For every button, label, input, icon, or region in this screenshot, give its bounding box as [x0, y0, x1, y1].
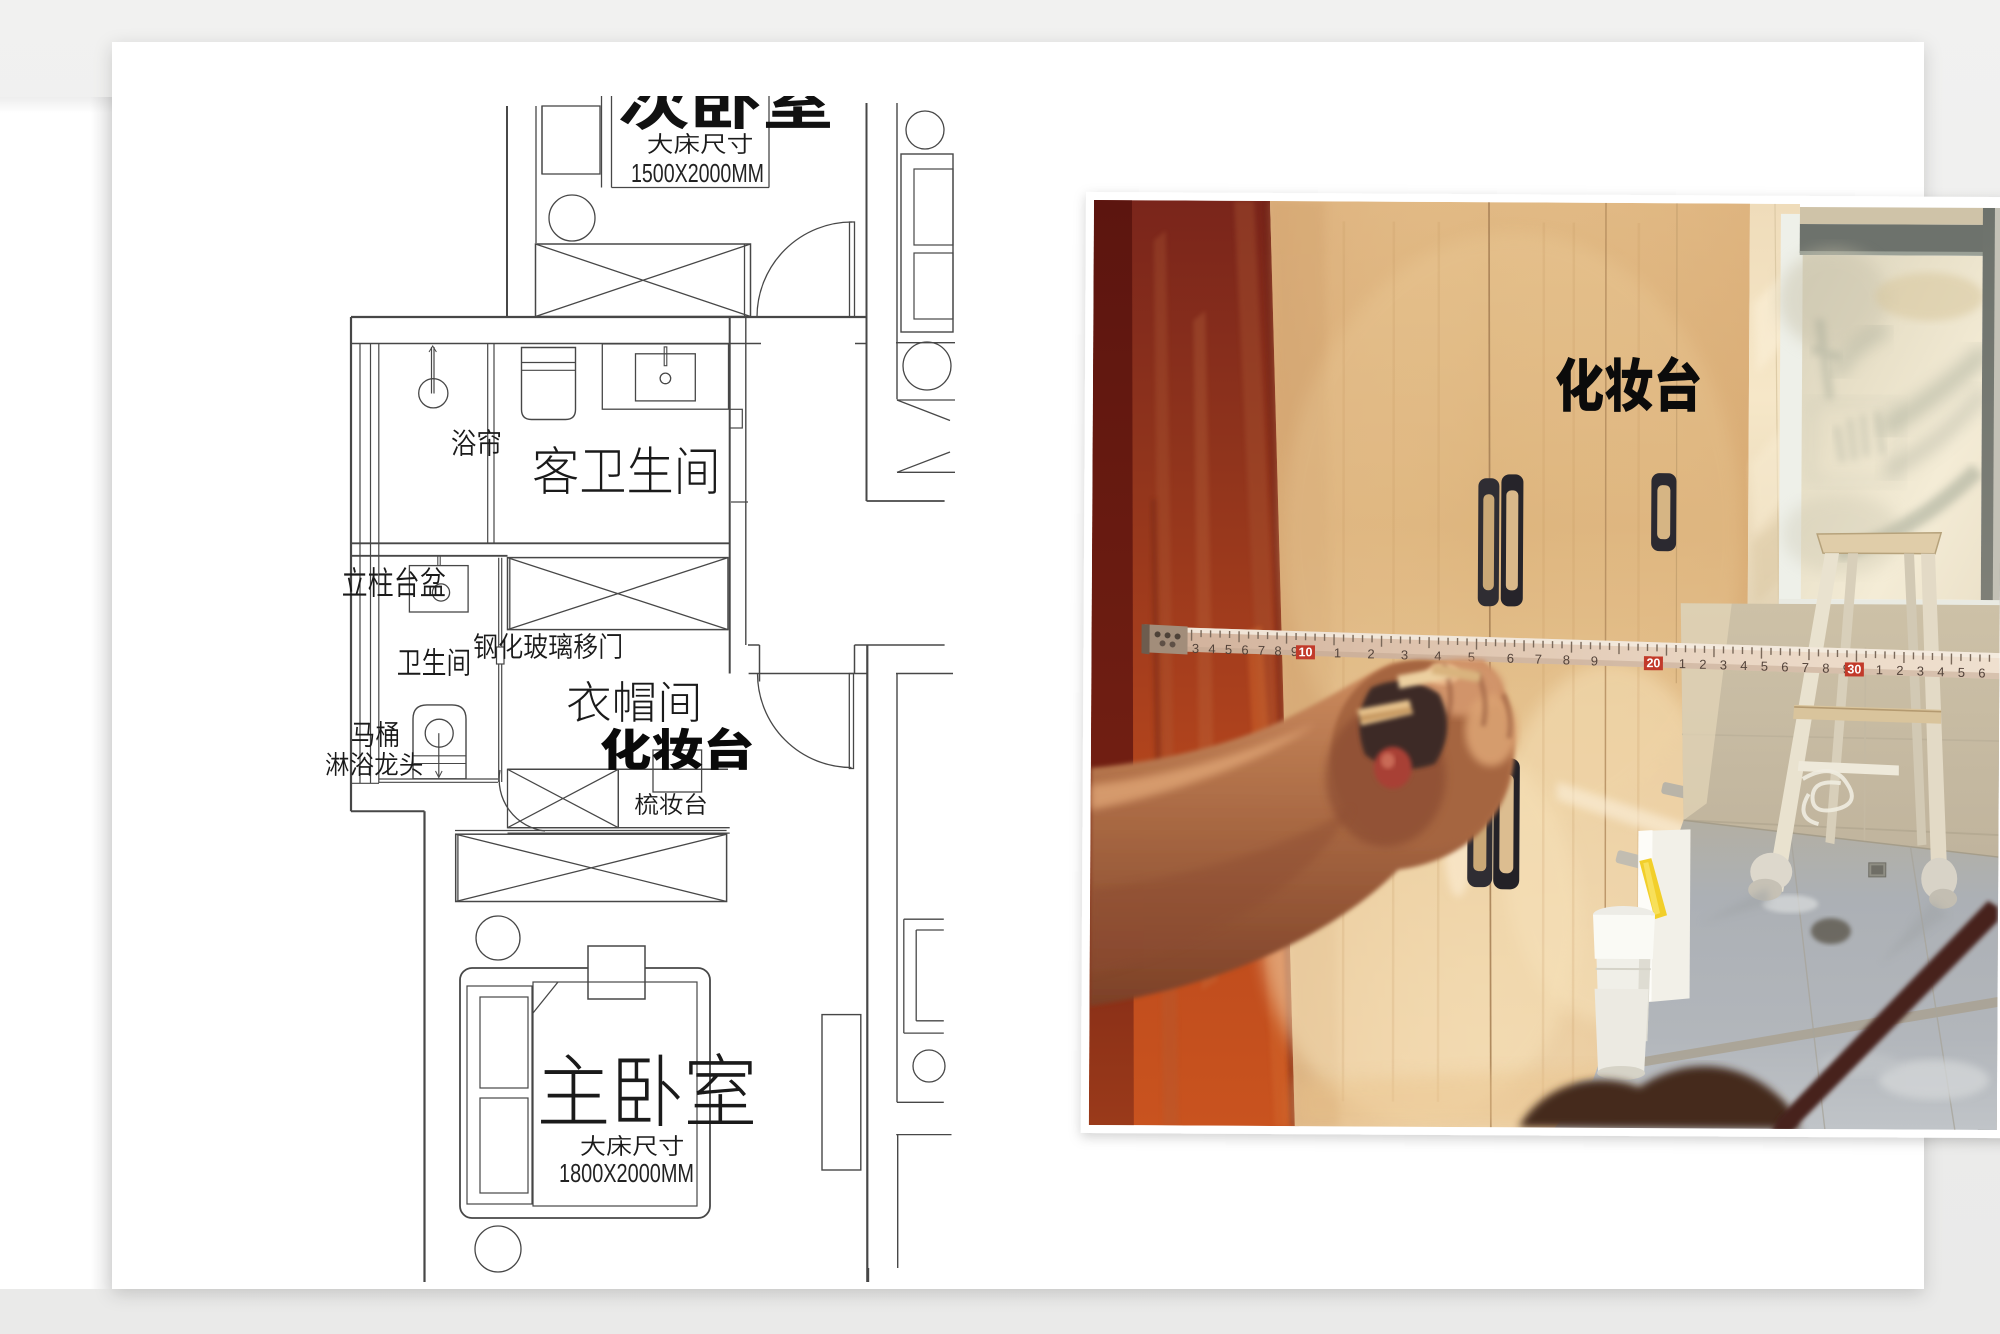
- svg-text:1800X2000MM: 1800X2000MM: [559, 1158, 694, 1188]
- svg-text:6: 6: [1781, 659, 1788, 674]
- svg-text:1500X2000MM: 1500X2000MM: [631, 158, 764, 188]
- svg-text:5: 5: [1225, 642, 1232, 657]
- svg-text:3: 3: [1401, 647, 1408, 662]
- svg-text:3: 3: [1917, 664, 1924, 679]
- svg-text:8: 8: [1563, 652, 1570, 667]
- svg-text:7: 7: [1535, 652, 1542, 667]
- svg-text:8: 8: [1822, 661, 1829, 676]
- svg-text:6: 6: [1507, 651, 1514, 666]
- svg-text:30: 30: [1847, 662, 1861, 676]
- svg-text:8: 8: [1274, 643, 1281, 658]
- svg-text:2: 2: [1896, 663, 1903, 678]
- svg-text:3: 3: [1192, 641, 1199, 656]
- svg-text:6: 6: [1978, 665, 1985, 680]
- svg-text:1: 1: [1876, 662, 1883, 677]
- svg-text:20: 20: [1646, 656, 1660, 670]
- svg-text:5: 5: [1958, 665, 1965, 680]
- svg-text:6: 6: [1241, 642, 1248, 657]
- svg-text:2: 2: [1699, 657, 1706, 672]
- svg-text:1: 1: [1334, 645, 1341, 660]
- svg-text:7: 7: [1258, 643, 1265, 658]
- svg-text:4: 4: [1208, 641, 1215, 656]
- svg-text:1: 1: [1679, 656, 1686, 671]
- svg-text:5: 5: [1761, 659, 1768, 674]
- svg-text:2: 2: [1367, 646, 1374, 661]
- svg-text:3: 3: [1720, 657, 1727, 672]
- svg-text:4: 4: [1937, 664, 1944, 679]
- svg-text:10: 10: [1298, 645, 1312, 659]
- svg-text:4: 4: [1740, 658, 1747, 673]
- svg-text:9: 9: [1591, 653, 1598, 668]
- svg-text:7: 7: [1802, 660, 1809, 675]
